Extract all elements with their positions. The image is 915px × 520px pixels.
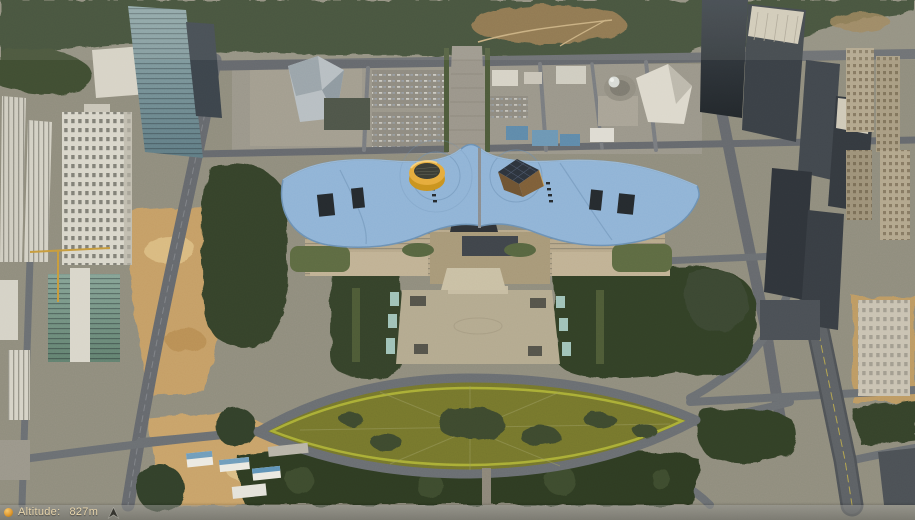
north-arrow-icon[interactable] xyxy=(107,507,120,519)
orange-dot-icon xyxy=(4,508,13,517)
haze xyxy=(0,0,915,60)
photo-grain xyxy=(0,0,915,520)
altitude-value: 827m xyxy=(69,505,98,520)
aerial-scene xyxy=(0,0,915,520)
altitude-label: Altitude: xyxy=(18,505,60,520)
map-3d-view[interactable]: Altitude: 827m xyxy=(0,0,915,520)
status-bar: Altitude: 827m xyxy=(0,505,915,520)
